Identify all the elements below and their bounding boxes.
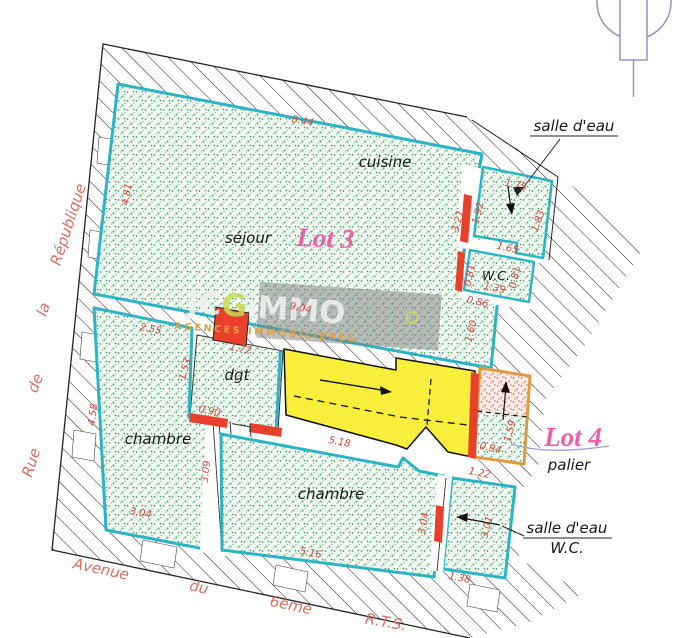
room-palier-green bbox=[474, 411, 527, 464]
callout-salle-deau-top: salle d'eau bbox=[534, 117, 615, 135]
street-du: du bbox=[188, 576, 210, 598]
room-salle-deau-bottom bbox=[443, 478, 515, 578]
floor-plan-page: JCGiMMO AGENCES IMMOBILIÈRES cuisine séj… bbox=[0, 0, 678, 638]
floor-plan-drawing: JCGiMMO AGENCES IMMOBILIÈRES cuisine séj… bbox=[0, 0, 678, 638]
callout-salle-deau-bottom: salle d'eau bbox=[527, 519, 608, 537]
street-de: de bbox=[24, 371, 48, 395]
label-sejour: séjour bbox=[225, 229, 272, 247]
callout-wc-bottom: W.C. bbox=[550, 539, 584, 557]
label-lot3: Lot 3 bbox=[295, 222, 355, 254]
street-rue: Rue bbox=[18, 446, 44, 479]
label-palier: palier bbox=[547, 456, 591, 474]
label-dgt: dgt bbox=[225, 366, 251, 384]
street-la: la bbox=[33, 300, 54, 319]
label-cuisine: cuisine bbox=[359, 153, 412, 171]
label-chambre-left: chambre bbox=[125, 430, 191, 448]
north-symbol-icon bbox=[597, 0, 671, 97]
window-opening bbox=[72, 430, 96, 461]
label-lot4: Lot 4 bbox=[543, 422, 602, 452]
label-chambre-right: chambre bbox=[298, 485, 364, 503]
